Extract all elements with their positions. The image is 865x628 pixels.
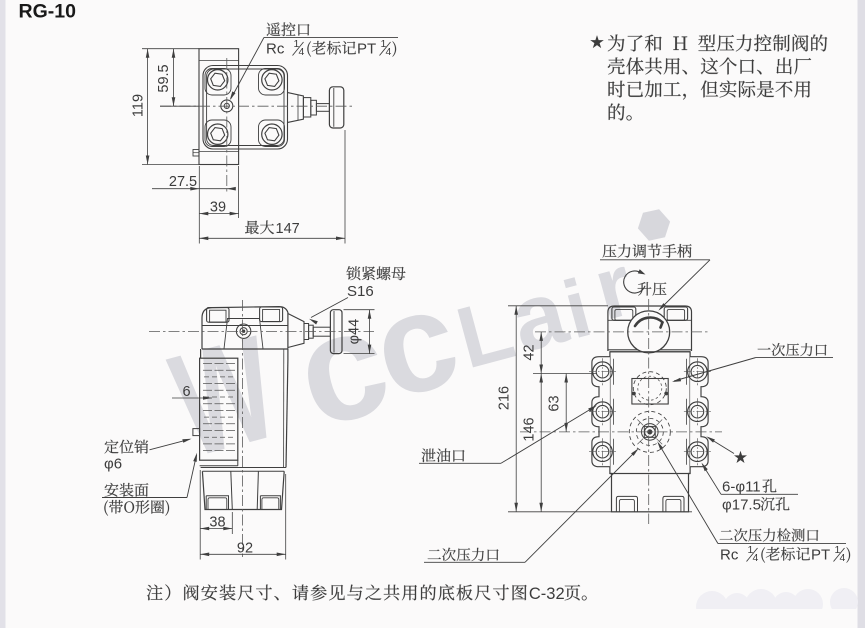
svg-text:27.5: 27.5 xyxy=(169,174,197,190)
svg-text:4: 4 xyxy=(840,552,846,564)
svg-text:119: 119 xyxy=(131,94,147,117)
svg-text:38: 38 xyxy=(209,515,225,531)
svg-text:92: 92 xyxy=(237,541,253,557)
svg-text:PT: PT xyxy=(811,547,830,564)
svg-text:C-32: C-32 xyxy=(529,585,565,603)
svg-text:4: 4 xyxy=(386,46,392,58)
svg-text:147: 147 xyxy=(276,221,300,237)
svg-text:PT: PT xyxy=(357,41,376,58)
svg-text:φ17.5: φ17.5 xyxy=(722,497,761,514)
svg-text:S16: S16 xyxy=(347,283,374,300)
svg-text:146: 146 xyxy=(522,417,538,441)
svg-text:216: 216 xyxy=(497,386,513,410)
svg-text:φ6: φ6 xyxy=(104,456,122,473)
svg-text:42: 42 xyxy=(522,344,538,360)
svg-text:Rc: Rc xyxy=(266,41,285,58)
svg-text:39: 39 xyxy=(210,200,226,216)
svg-text:63: 63 xyxy=(547,395,563,411)
svg-text:4: 4 xyxy=(753,552,759,564)
svg-text:RG-10: RG-10 xyxy=(19,1,77,23)
svg-text:6: 6 xyxy=(182,384,190,400)
svg-text:4: 4 xyxy=(299,46,305,58)
svg-text:6-φ11: 6-φ11 xyxy=(722,479,761,496)
svg-text:59.5: 59.5 xyxy=(156,64,172,92)
svg-text:Rc: Rc xyxy=(720,547,739,564)
svg-text:φ44: φ44 xyxy=(347,319,363,345)
